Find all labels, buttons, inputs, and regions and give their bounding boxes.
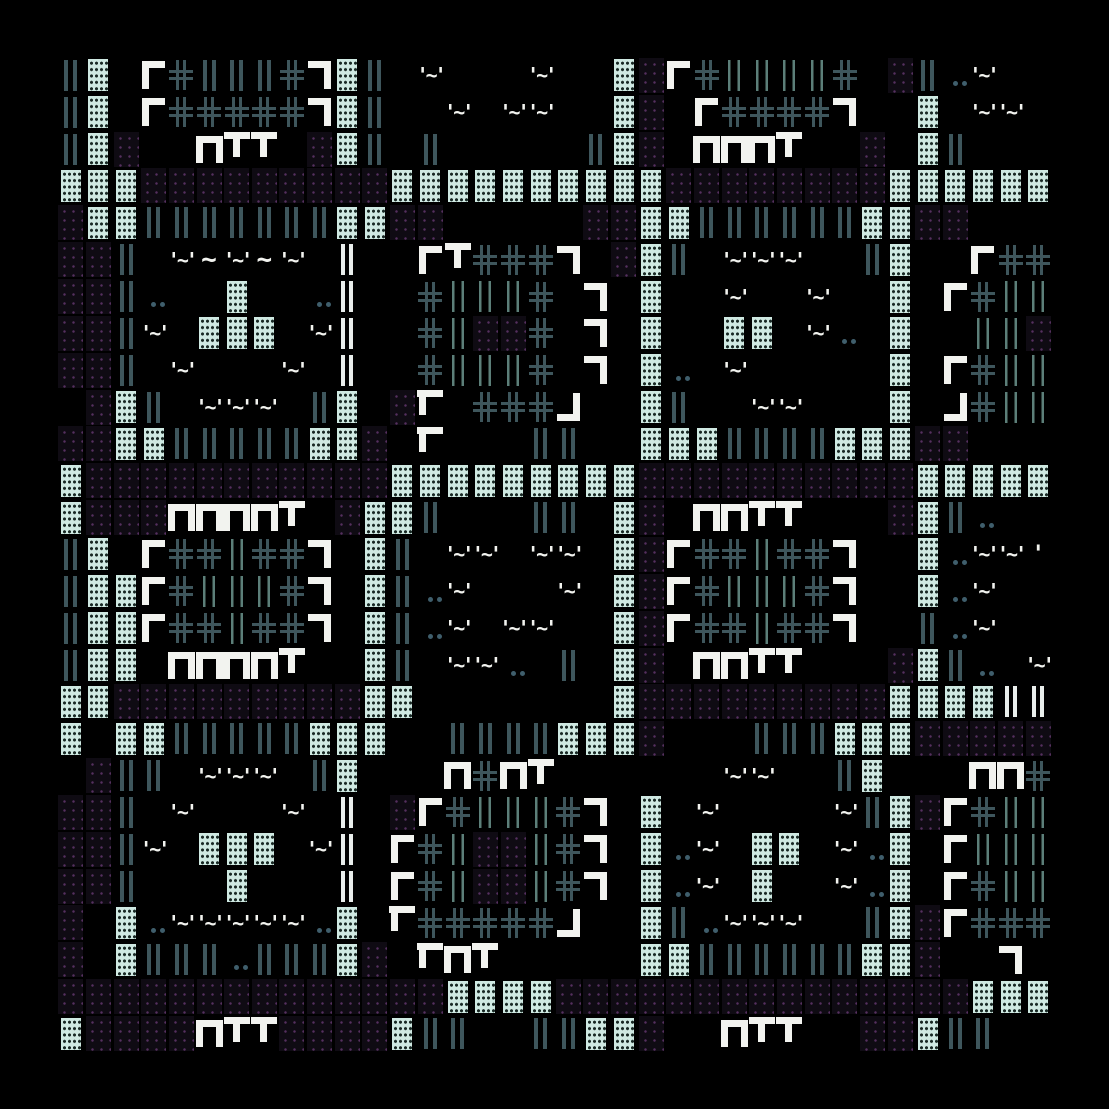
slate-double-bar-icon [949,1018,962,1049]
cell-mint-block [85,536,113,573]
mint-block-icon [531,465,551,497]
violet-dot-block-icon [473,869,498,904]
cell-violet-dot-block [637,131,665,168]
violet-dot-block-icon [694,979,719,1014]
cell-violet-dot-block [803,978,831,1015]
violet-dot-block-icon [888,979,913,1014]
cell-slate-double-bar [693,204,721,241]
cell-white-tee-left [416,389,444,426]
white-corner-tr-icon [557,246,580,274]
cell-slate-double-bar [140,757,168,794]
slate-double-bar-icon [534,723,547,754]
violet-dot-block-icon [611,205,636,240]
slate-double-bar-icon [258,944,271,975]
cell-slate-double-cross [444,794,472,831]
cell-white-pi-shape [250,647,278,684]
cell-white-eye: '~' [831,831,859,868]
slate-double-bar-icon [230,723,243,754]
cell-slate-double-bar [57,536,85,573]
cell-violet-dot-block [112,131,140,168]
violet-dot-block-icon [307,1016,332,1051]
mint-block-icon [310,723,330,755]
cell-violet-dot-block [637,462,665,499]
mint-block-icon [945,465,965,497]
steel-dot-pair-icon [870,855,875,860]
violet-dot-block-icon [556,979,581,1014]
white-double-bar-icon [341,834,353,865]
mint-block-icon [614,96,634,128]
slate-double-bar-icon [838,207,851,238]
cell-mint-block [582,462,610,499]
cell-slate-double-bar [416,499,444,536]
slate-double-bar-icon [313,392,326,423]
cell-white-tee-shape [527,757,555,794]
mint-block-icon [199,317,219,349]
white-tee-shape-icon [279,501,305,535]
slate-double-cross-icon [556,834,580,864]
mint-block-icon [503,170,523,202]
slate-double-bar-icon [230,428,243,459]
cell-mint-block [306,720,334,757]
cell-slate-double-cross [969,389,997,426]
cell-violet-dot-block [637,536,665,573]
slate-double-bar-icon [147,944,160,975]
cell-mint-block [112,941,140,978]
slate-double-cross-icon [501,908,525,938]
cell-white-pi-shape [195,131,223,168]
violet-dot-block-icon [888,500,913,535]
mint-block-icon [669,428,689,460]
cell-steel-dot-pair [140,278,168,315]
cell-violet-dot-block [140,683,168,720]
cell-violet-dot-block [195,978,223,1015]
cell-white-pi-shape [997,757,1025,794]
cell-violet-dot-block [886,647,914,684]
cell-mint-block [140,426,168,463]
mint-block-icon [614,133,634,165]
cell-mint-block [499,978,527,1015]
cell-slate-double-cross [250,610,278,647]
cell-violet-dot-block [361,168,389,205]
cell-mint-block [555,720,583,757]
white-corner-tl-icon [695,98,718,126]
cell-mint-block [416,462,444,499]
cell-violet-dot-block [693,168,721,205]
cell-slate-double-bar [112,794,140,831]
violet-dot-block-icon [224,979,249,1014]
white-tee-shape-icon [445,243,471,277]
mint-block-icon [310,428,330,460]
cell-thin-bar-pair [499,352,527,389]
slate-double-cross-icon [252,613,276,643]
cell-white-eye: '~' [969,536,997,573]
cell-white-eye: '~' [416,57,444,94]
cell-slate-double-bar [389,610,417,647]
mint-block-icon [1001,170,1021,202]
mint-block-icon [918,502,938,534]
violet-dot-block-icon [583,205,608,240]
violet-dot-block-icon [86,979,111,1014]
slate-double-cross-icon [418,908,442,938]
slate-double-bar-icon [700,944,713,975]
slate-double-cross-icon [252,97,276,127]
cell-slate-double-bar [914,610,942,647]
thin-bar-pair-icon [728,576,740,607]
cell-slate-double-bar [168,720,196,757]
cell-violet-dot-block [389,978,417,1015]
slate-double-bar-icon [147,392,160,423]
cell-slate-double-bar [527,720,555,757]
cell-violet-dot-block [720,168,748,205]
slate-double-bar-icon [120,244,133,275]
cell-violet-dot-block [941,426,969,463]
violet-dot-block-icon [307,132,332,167]
cell-mint-block [914,1015,942,1052]
white-tee-shape-icon [279,648,305,682]
cell-violet-dot-block [1024,720,1052,757]
violet-dot-block-icon [639,1016,664,1051]
cell-violet-dot-block [637,720,665,757]
mint-block-icon [586,465,606,497]
white-corner-tl-icon [944,283,967,311]
thin-bar-pair-icon [535,834,547,865]
mint-block-icon [475,170,495,202]
slate-double-cross-icon [529,282,553,312]
cell-steel-dot-pair [859,831,887,868]
violet-dot-block-icon [722,684,747,719]
slate-double-bar-icon [672,244,685,275]
mint-block-icon [697,428,717,460]
cell-slate-double-cross [472,757,500,794]
slate-double-cross-icon [750,97,774,127]
cell-slate-double-cross [1024,757,1052,794]
cell-slate-double-bar [803,204,831,241]
cell-violet-dot-block [306,462,334,499]
cell-mint-block [610,57,638,94]
cell-white-double-bar [333,831,361,868]
cell-slate-double-bar [665,905,693,942]
slate-double-bar-icon [672,907,685,938]
cell-mint-block [914,94,942,131]
mint-block-icon [641,391,661,423]
cell-violet-dot-block [637,978,665,1015]
cell-white-tee-shape [250,1015,278,1052]
mint-block-icon [1001,981,1021,1013]
cell-mint-block [444,978,472,1015]
cell-mint-block [333,131,361,168]
cell-violet-dot-block [776,683,804,720]
cell-mint-block [859,941,887,978]
cell-steel-dot-pair [416,610,444,647]
cell-slate-double-cross [803,94,831,131]
white-corner-tr-icon [308,614,331,642]
cell-violet-dot-block [85,978,113,1015]
mint-block-icon [116,428,136,460]
cell-violet-dot-block [472,868,500,905]
cell-mint-block [637,204,665,241]
cell-thin-bar-pair [720,573,748,610]
cell-thin-bar-pair [997,868,1025,905]
mint-block-icon [918,96,938,128]
cell-white-eye: '~' [472,647,500,684]
cell-violet-dot-block [472,315,500,352]
cell-slate-double-bar [859,241,887,278]
cell-violet-dot-block [997,720,1025,757]
violet-dot-block-icon [583,979,608,1014]
mint-block-icon [918,649,938,681]
slate-double-bar-icon [534,1018,547,1049]
cell-white-eye: '~' [195,757,223,794]
thin-bar-pair-icon [756,576,768,607]
mint-block-icon [862,944,882,976]
cell-thin-bar-pair [1024,278,1052,315]
cell-white-eye: '~' [444,647,472,684]
white-corner-tl-icon [667,61,690,89]
cell-violet-dot-block [112,1015,140,1052]
cell-mint-block [748,315,776,352]
cell-slate-double-bar [416,131,444,168]
white-corner-br-icon [944,393,967,421]
cell-violet-dot-block [582,978,610,1015]
cell-violet-dot-block [914,426,942,463]
cell-white-corner-tl [389,868,417,905]
cell-slate-double-bar [693,941,721,978]
cell-violet-dot-block [112,462,140,499]
slate-double-cross-icon [971,282,995,312]
cell-white-corner-tr [582,831,610,868]
violet-dot-block-icon [86,390,111,425]
steel-dot-pair-icon [151,928,156,933]
cell-slate-double-bar [831,757,859,794]
steel-dot-pair-icon [151,302,156,307]
cell-slate-double-bar [444,720,472,757]
cell-violet-dot-block [278,168,306,205]
slate-double-bar-icon [589,134,602,165]
white-corner-tl-icon [944,835,967,863]
cell-mint-block [914,573,942,610]
white-tee-shape-icon [776,132,802,166]
cell-slate-double-bar [195,204,223,241]
thin-bar-pair-icon [783,60,795,91]
cell-mint-block [140,720,168,757]
cell-slate-double-bar [278,426,306,463]
mint-block-icon [337,944,357,976]
cell-slate-double-cross [997,905,1025,942]
mint-block-icon [392,170,412,202]
slate-double-cross-icon [971,392,995,422]
thin-bar-pair-icon [1032,355,1044,386]
cell-mint-block [914,462,942,499]
white-corner-tr-icon [308,61,331,89]
cell-slate-double-cross [1024,905,1052,942]
slate-double-cross-icon [777,539,801,569]
mint-block-icon [420,465,440,497]
mint-block-icon [531,170,551,202]
slate-double-bar-icon [64,650,77,681]
cell-mint-block [969,462,997,499]
mint-block-icon [779,833,799,865]
violet-dot-block-icon [197,168,222,203]
slate-double-cross-icon [695,613,719,643]
mint-block-icon [614,723,634,755]
cell-violet-dot-block [333,978,361,1015]
cell-thin-bar-pair [969,315,997,352]
cell-violet-dot-block [776,462,804,499]
cell-violet-dot-block [914,905,942,942]
cell-white-pi-shape [168,647,196,684]
cell-mint-block [444,168,472,205]
violet-dot-block-icon [943,426,968,461]
cell-violet-dot-block [140,499,168,536]
cell-mint-block [1024,462,1052,499]
slate-double-bar-icon [203,428,216,459]
cell-slate-double-bar [250,720,278,757]
cell-white-eye: '~' [278,905,306,942]
mint-block-icon [88,170,108,202]
cell-white-corner-tr [306,536,334,573]
cell-mint-block [472,978,500,1015]
cell-steel-dot-pair [941,57,969,94]
cell-slate-double-cross [555,831,583,868]
violet-dot-block-icon [722,979,747,1014]
cell-white-eye: '~' [195,905,223,942]
violet-dot-block-icon [224,463,249,498]
white-double-bar-icon [341,244,353,275]
cell-mint-block [223,278,251,315]
thin-bar-pair-icon [1005,318,1017,349]
violet-dot-block-icon [777,463,802,498]
cell-thin-bar-pair [444,315,472,352]
cell-violet-dot-block [57,978,85,1015]
cell-violet-dot-block [637,573,665,610]
cell-violet-dot-block [250,683,278,720]
cell-mint-block [886,315,914,352]
cell-thin-bar-pair [997,831,1025,868]
cell-mint-block [333,389,361,426]
cell-mint-block [582,168,610,205]
cell-steel-dot-pair [665,352,693,389]
cell-thin-bar-pair [969,831,997,868]
cell-white-eye: '~' [527,536,555,573]
cell-steel-dot-pair [859,868,887,905]
cell-white-pi-shape [969,757,997,794]
thin-bar-pair-icon [452,834,464,865]
slate-double-cross-icon [418,871,442,901]
cell-mint-block [555,462,583,499]
cell-white-tee-shape [748,647,776,684]
cell-slate-double-bar [250,204,278,241]
mint-block-icon [614,686,634,718]
cell-steel-dot-pair [416,573,444,610]
thin-bar-pair-icon [1032,871,1044,902]
slate-double-bar-icon [700,207,713,238]
cell-violet-dot-block [803,168,831,205]
cell-violet-dot-block [223,462,251,499]
white-tee-left-icon [417,390,443,424]
cell-violet-dot-block [195,683,223,720]
cell-white-eye: '~' [748,757,776,794]
cell-mint-block [499,168,527,205]
cell-slate-double-cross [555,868,583,905]
violet-dot-block-icon [114,1016,139,1051]
thin-bar-pair-icon [203,576,215,607]
cell-violet-dot-block [693,462,721,499]
cell-violet-dot-block [85,241,113,278]
cell-thin-bar-pair [997,794,1025,831]
violet-dot-block-icon [915,795,940,830]
cell-thin-bar-pair [997,389,1025,426]
thin-bar-pair-icon [1032,797,1044,828]
steel-dot-pair-icon [676,855,681,860]
mint-block-icon [558,723,578,755]
cell-violet-dot-block [886,462,914,499]
cell-violet-dot-block [278,462,306,499]
slate-double-bar-icon [203,944,216,975]
cell-mint-block [389,683,417,720]
cell-white-eye: '~' [831,868,859,905]
cell-mint-block [472,462,500,499]
steel-dot-pair-icon [870,892,875,897]
white-corner-tl-icon [944,798,967,826]
cell-mint-block [57,168,85,205]
cell-thin-bar-pair [1024,389,1052,426]
cell-white-pi-shape [168,499,196,536]
mint-block-icon [88,686,108,718]
thin-bar-pair-icon [783,576,795,607]
slate-double-bar-icon [838,760,851,791]
cell-slate-double-cross [527,389,555,426]
violet-dot-block-icon [473,832,498,867]
cell-mint-block [941,168,969,205]
glyph-grid: '~''~''~''~''~''~''~''~''~'~'~'~'~''~''~… [57,57,1052,1052]
cell-violet-dot-block [914,720,942,757]
mint-block-icon [61,465,81,497]
mint-block-icon [199,833,219,865]
violet-dot-block-icon [335,463,360,498]
slate-double-cross-icon [722,97,746,127]
thin-bar-pair-icon [452,871,464,902]
cell-mint-block [610,536,638,573]
mint-block-icon [116,723,136,755]
violet-dot-block-icon [639,684,664,719]
cell-white-corner-tl [665,573,693,610]
white-double-bar-icon [1005,686,1017,717]
slate-double-bar-icon [120,760,133,791]
violet-dot-block-icon [390,795,415,830]
cell-white-pi-shape [720,647,748,684]
mint-block-icon [88,575,108,607]
slate-double-bar-icon [866,797,879,828]
slate-double-bar-icon [534,428,547,459]
cell-violet-dot-block [57,204,85,241]
steel-dot-pair-icon [428,597,433,602]
cell-white-eye: '~' [969,57,997,94]
cell-white-eye: '~' [444,610,472,647]
cell-mint-block [637,241,665,278]
cell-slate-double-cross [527,278,555,315]
mint-block-icon [116,944,136,976]
cell-white-pi-shape [195,1015,223,1052]
cell-white-eye: '~' [555,573,583,610]
cell-slate-double-cross [803,610,831,647]
cell-steel-dot-pair [140,905,168,942]
slate-double-cross-icon [473,392,497,422]
cell-violet-dot-block [748,978,776,1015]
mint-block-icon [835,428,855,460]
cell-white-corner-tr [306,573,334,610]
cell-white-eye: '~' [693,868,721,905]
cell-mint-block [886,941,914,978]
